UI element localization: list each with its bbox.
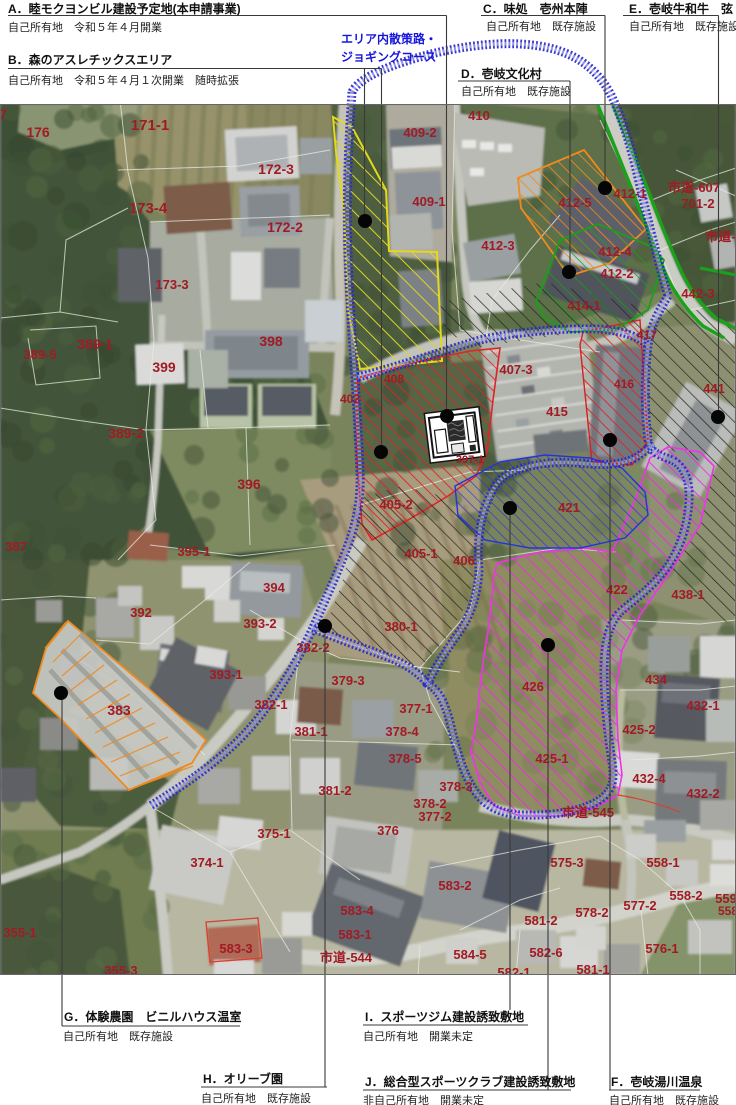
svg-text:578-2: 578-2 — [575, 905, 608, 920]
svg-text:172-3: 172-3 — [258, 161, 294, 177]
svg-text:7: 7 — [0, 106, 7, 122]
svg-text:378-4: 378-4 — [385, 724, 419, 739]
svg-text:576-1: 576-1 — [645, 941, 678, 956]
svg-text:非自己所有地 開業未定: 非自己所有地 開業未定 — [363, 1093, 484, 1105]
svg-text:416: 416 — [614, 377, 634, 391]
svg-text:412-2: 412-2 — [600, 266, 633, 281]
svg-text:378-3: 378-3 — [439, 779, 472, 794]
svg-text:406: 406 — [453, 553, 475, 568]
svg-text:415: 415 — [546, 404, 568, 419]
svg-text:394: 394 — [263, 580, 285, 595]
svg-text:432-1: 432-1 — [686, 698, 719, 713]
svg-text:H．オリーブ園: H．オリーブ園 — [203, 1071, 283, 1086]
svg-text:405-2: 405-2 — [379, 497, 412, 512]
svg-text:405-1: 405-1 — [404, 546, 437, 561]
svg-text:374-1: 374-1 — [190, 855, 223, 870]
svg-text:414-1: 414-1 — [567, 298, 600, 313]
svg-text:412-5: 412-5 — [558, 195, 591, 210]
svg-text:A．睦モクヨンビル建設予定地(本申請事業): A．睦モクヨンビル建設予定地(本申請事業) — [8, 1, 241, 16]
svg-text:G．体験農園 ビニルハウス温室: G．体験農園 ビニルハウス温室 — [64, 1009, 241, 1024]
svg-text:自己所有地 令和５年４月１次開業 随時拡張: 自己所有地 令和５年４月１次開業 随時拡張 — [8, 73, 239, 87]
svg-text:ジョギングコース: ジョギングコース — [341, 49, 436, 64]
svg-text:581-2: 581-2 — [524, 913, 557, 928]
svg-text:425-1: 425-1 — [535, 751, 568, 766]
svg-text:377-2: 377-2 — [418, 809, 451, 824]
svg-text:402: 402 — [340, 392, 360, 406]
svg-text:432-4: 432-4 — [632, 771, 666, 786]
svg-text:412-4: 412-4 — [598, 244, 632, 259]
svg-text:市道-607: 市道-607 — [668, 180, 720, 195]
svg-text:434: 434 — [645, 672, 667, 687]
svg-text:自己所有地 既存施設: 自己所有地 既存施設 — [63, 1029, 173, 1043]
svg-text:442-3: 442-3 — [681, 286, 714, 301]
svg-text:173-3: 173-3 — [155, 277, 188, 292]
svg-text:426: 426 — [522, 679, 544, 694]
svg-text:393-1: 393-1 — [209, 667, 242, 682]
svg-text:582-1: 582-1 — [497, 965, 530, 980]
svg-text:395-1: 395-1 — [177, 544, 210, 559]
svg-text:382-1: 382-1 — [254, 697, 287, 712]
svg-text:エリア内散策路・: エリア内散策路・ — [341, 31, 437, 46]
svg-text:173-4: 173-4 — [129, 200, 168, 217]
svg-text:583-2: 583-2 — [438, 878, 471, 893]
svg-text:397-1: 397-1 — [456, 454, 484, 466]
svg-text:392: 392 — [130, 605, 152, 620]
svg-text:387: 387 — [5, 539, 27, 554]
svg-text:396: 396 — [237, 476, 261, 492]
svg-text:409-1: 409-1 — [412, 194, 445, 209]
svg-text:市道-545: 市道-545 — [562, 805, 614, 820]
svg-text:583-4: 583-4 — [340, 903, 374, 918]
svg-text:176: 176 — [26, 124, 50, 140]
svg-text:381-2: 381-2 — [318, 783, 351, 798]
svg-text:422: 422 — [606, 582, 628, 597]
svg-text:377-1: 377-1 — [399, 701, 432, 716]
svg-text:D．壱岐文化村: D．壱岐文化村 — [461, 66, 542, 81]
svg-text:701-2: 701-2 — [681, 196, 714, 211]
svg-text:577-2: 577-2 — [623, 898, 656, 913]
svg-text:E．壱岐牛和牛 弦: E．壱岐牛和牛 弦 — [629, 1, 733, 16]
svg-text:自己所有地 既存施設: 自己所有地 既存施設 — [461, 84, 571, 98]
svg-text:389-2: 389-2 — [108, 425, 144, 441]
svg-text:558: 558 — [718, 904, 736, 918]
svg-text:389-1: 389-1 — [77, 336, 113, 352]
svg-text:558-1: 558-1 — [646, 855, 679, 870]
svg-text:558-2: 558-2 — [669, 888, 702, 903]
svg-text:583-3: 583-3 — [219, 941, 252, 956]
svg-text:C．味処 壱州本陣: C．味処 壱州本陣 — [483, 1, 588, 16]
svg-text:421: 421 — [558, 500, 580, 515]
svg-text:408: 408 — [384, 372, 404, 386]
svg-text:172-2: 172-2 — [267, 219, 303, 235]
svg-text:I．スポーツジム建設誘致敷地: I．スポーツジム建設誘致敷地 — [365, 1009, 524, 1024]
svg-text:B．森のアスレチックスエリア: B．森のアスレチックスエリア — [8, 52, 172, 67]
svg-text:F．壱岐湯川温泉: F．壱岐湯川温泉 — [611, 1074, 703, 1089]
svg-text:399: 399 — [152, 359, 176, 375]
svg-text:J．総合型スポーツクラブ建設誘致敷地: J．総合型スポーツクラブ建設誘致敷地 — [365, 1074, 575, 1089]
svg-text:381-1: 381-1 — [294, 724, 327, 739]
svg-text:412-1: 412-1 — [613, 186, 646, 201]
svg-text:583-1: 583-1 — [338, 927, 371, 942]
svg-text:425-2: 425-2 — [622, 722, 655, 737]
svg-text:171-1: 171-1 — [131, 117, 169, 134]
svg-text:441: 441 — [703, 381, 725, 396]
svg-text:417: 417 — [637, 328, 657, 342]
svg-text:584-5: 584-5 — [453, 947, 486, 962]
svg-text:582-6: 582-6 — [529, 945, 562, 960]
svg-text:407-3: 407-3 — [499, 362, 532, 377]
svg-text:409-2: 409-2 — [403, 125, 436, 140]
svg-text:自己所有地 既存施設: 自己所有地 既存施設 — [486, 19, 596, 33]
svg-text:自己所有地 開業未定: 自己所有地 開業未定 — [363, 1029, 473, 1043]
svg-text:575-3: 575-3 — [550, 855, 583, 870]
svg-text:432-2: 432-2 — [686, 786, 719, 801]
svg-text:438-1: 438-1 — [671, 587, 704, 602]
svg-text:市道-544: 市道-544 — [320, 950, 373, 965]
svg-text:自己所有地 既存施設: 自己所有地 既存施設 — [609, 1093, 719, 1105]
svg-text:393-2: 393-2 — [243, 616, 276, 631]
svg-text:自己所有地 令和５年４月開業: 自己所有地 令和５年４月開業 — [8, 20, 162, 34]
svg-text:自己所有地 既存施設: 自己所有地 既存施設 — [201, 1091, 311, 1105]
svg-text:378-5: 378-5 — [388, 751, 421, 766]
svg-text:389-5: 389-5 — [23, 347, 56, 362]
svg-text:自己所有地 既存施設: 自己所有地 既存施設 — [629, 19, 736, 33]
svg-text:375-1: 375-1 — [257, 826, 290, 841]
svg-text:市道-5: 市道-5 — [705, 229, 736, 244]
svg-text:380-1: 380-1 — [384, 619, 417, 634]
svg-text:398: 398 — [259, 333, 283, 349]
svg-text:355-3: 355-3 — [104, 963, 137, 978]
svg-text:410: 410 — [468, 108, 490, 123]
svg-text:383: 383 — [107, 702, 131, 718]
svg-text:376: 376 — [377, 823, 399, 838]
svg-text:355-1: 355-1 — [3, 925, 36, 940]
svg-text:412-3: 412-3 — [481, 238, 514, 253]
svg-text:379-3: 379-3 — [331, 673, 364, 688]
